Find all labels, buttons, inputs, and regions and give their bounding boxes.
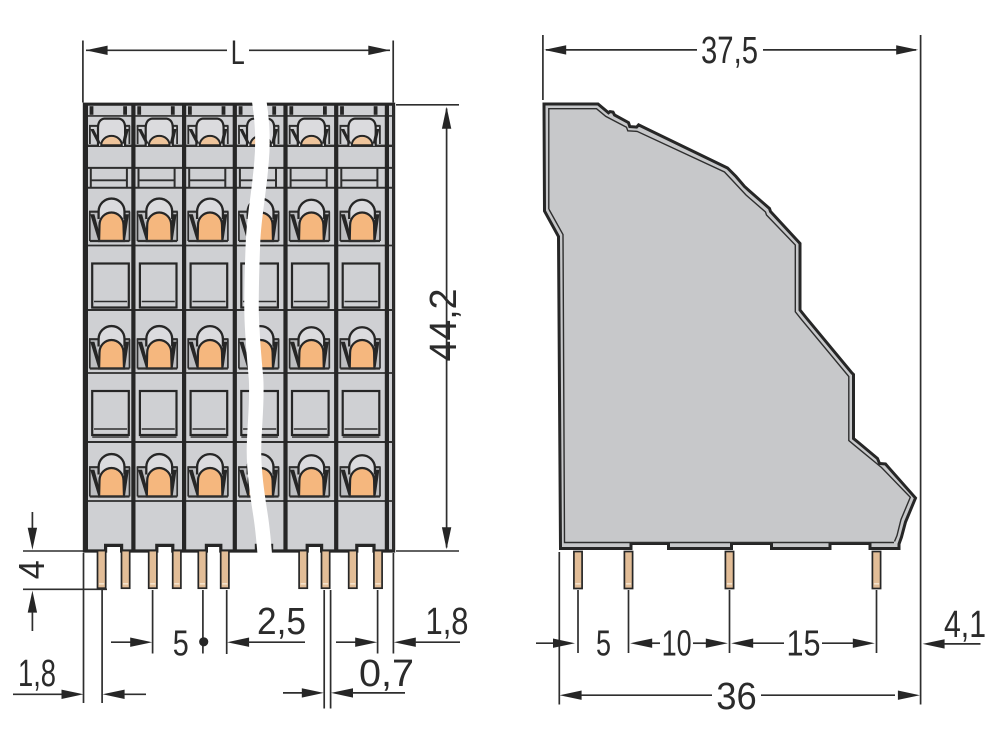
svg-text:L: L: [231, 34, 245, 72]
svg-text:4: 4: [11, 560, 52, 579]
svg-text:5: 5: [173, 623, 189, 664]
svg-text:0,7: 0,7: [359, 653, 414, 695]
svg-text:4,1: 4,1: [944, 604, 986, 646]
svg-text:1,8: 1,8: [426, 601, 469, 643]
svg-text:10: 10: [662, 623, 692, 664]
svg-text:37,5: 37,5: [701, 30, 758, 72]
svg-text:1,8: 1,8: [18, 653, 56, 695]
svg-text:36: 36: [716, 676, 757, 718]
svg-text:15: 15: [787, 623, 821, 664]
svg-text:2,5: 2,5: [257, 601, 306, 643]
svg-text:44,2: 44,2: [423, 289, 465, 362]
svg-text:5: 5: [596, 623, 611, 664]
